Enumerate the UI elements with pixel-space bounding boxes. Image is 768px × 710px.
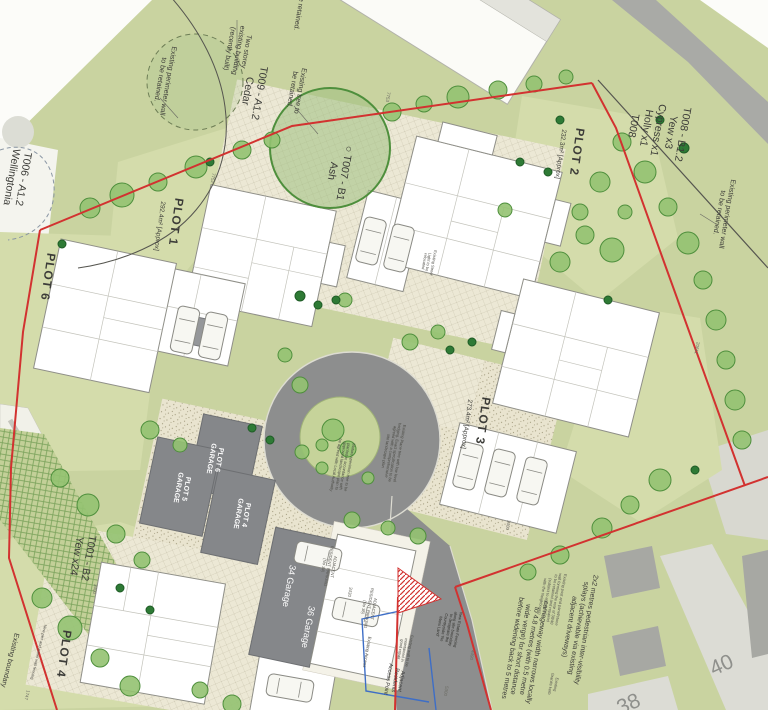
tree-icon bbox=[576, 226, 594, 244]
tree-icon bbox=[316, 439, 328, 451]
tree-icon bbox=[134, 552, 150, 568]
conifer-tree-icon bbox=[248, 424, 256, 432]
conifer-tree-icon bbox=[468, 338, 476, 346]
conifer-tree-icon bbox=[516, 158, 524, 166]
conifer-tree-icon bbox=[544, 168, 552, 176]
tree-icon bbox=[340, 441, 356, 457]
conifer-tree-icon bbox=[656, 116, 664, 124]
tree-icon bbox=[316, 462, 328, 474]
tree-icon bbox=[725, 390, 745, 410]
tree-icon bbox=[344, 512, 360, 528]
conifer-tree-icon bbox=[332, 296, 340, 304]
tree-icon bbox=[618, 205, 632, 219]
tree-icon bbox=[634, 161, 656, 183]
tree-icon bbox=[416, 96, 432, 112]
tree-icon bbox=[559, 70, 573, 84]
tree-icon bbox=[223, 695, 241, 710]
tree-icon bbox=[590, 172, 610, 192]
conifer-tree-icon bbox=[691, 466, 699, 474]
conifer-tree-icon bbox=[679, 143, 689, 153]
tree-icon bbox=[32, 588, 52, 608]
tree-icon bbox=[91, 649, 109, 667]
tree-icon bbox=[120, 676, 140, 696]
tree-icon bbox=[694, 271, 712, 289]
conifer-tree-icon bbox=[266, 436, 274, 444]
tree-icon bbox=[659, 198, 677, 216]
tree-icon bbox=[51, 469, 69, 487]
tree-icon bbox=[322, 419, 344, 441]
tree-canopy-t007 bbox=[270, 88, 390, 208]
tree-icon bbox=[649, 469, 671, 491]
tree-icon bbox=[550, 252, 570, 272]
tree-icon bbox=[381, 521, 395, 535]
site-plan: T008 - B1.2 Yew x3 Cypress x1 Holly x1 T… bbox=[0, 0, 768, 710]
tree-icon bbox=[278, 348, 292, 362]
tree-icon bbox=[292, 377, 308, 393]
tree-icon bbox=[173, 438, 187, 452]
tree-icon bbox=[77, 494, 99, 516]
tree-icon bbox=[110, 183, 134, 207]
existing-structure-left bbox=[2, 116, 34, 148]
tree-icon bbox=[80, 198, 100, 218]
tree-icon bbox=[498, 203, 512, 217]
tree-icon bbox=[362, 472, 374, 484]
conifer-tree-icon bbox=[604, 296, 612, 304]
tree-icon bbox=[600, 238, 624, 262]
tree-icon bbox=[431, 325, 445, 339]
tree-icon bbox=[717, 351, 735, 369]
site-plan-drawing bbox=[0, 0, 768, 710]
conifer-tree-icon bbox=[295, 291, 305, 301]
conifer-tree-icon bbox=[58, 240, 66, 248]
tree-icon bbox=[733, 431, 751, 449]
tree-icon bbox=[141, 421, 159, 439]
tree-icon bbox=[677, 232, 699, 254]
tree-icon bbox=[58, 616, 82, 640]
conifer-tree-icon bbox=[314, 301, 322, 309]
tree-icon bbox=[185, 156, 207, 178]
tree-icon bbox=[402, 334, 418, 350]
conifer-tree-icon bbox=[146, 606, 154, 614]
conifer-tree-icon bbox=[116, 584, 124, 592]
tree-icon bbox=[572, 204, 588, 220]
tree-icon bbox=[107, 525, 125, 543]
tree-icon bbox=[410, 528, 426, 544]
tree-icon bbox=[706, 310, 726, 330]
conifer-tree-icon bbox=[556, 116, 564, 124]
tree-canopy-t009 bbox=[147, 34, 243, 130]
tree-icon bbox=[621, 496, 639, 514]
tree-icon bbox=[295, 445, 309, 459]
tree-icon bbox=[192, 682, 208, 698]
conifer-tree-icon bbox=[446, 346, 454, 354]
tree-icon bbox=[447, 86, 469, 108]
tree-icon bbox=[520, 564, 536, 580]
